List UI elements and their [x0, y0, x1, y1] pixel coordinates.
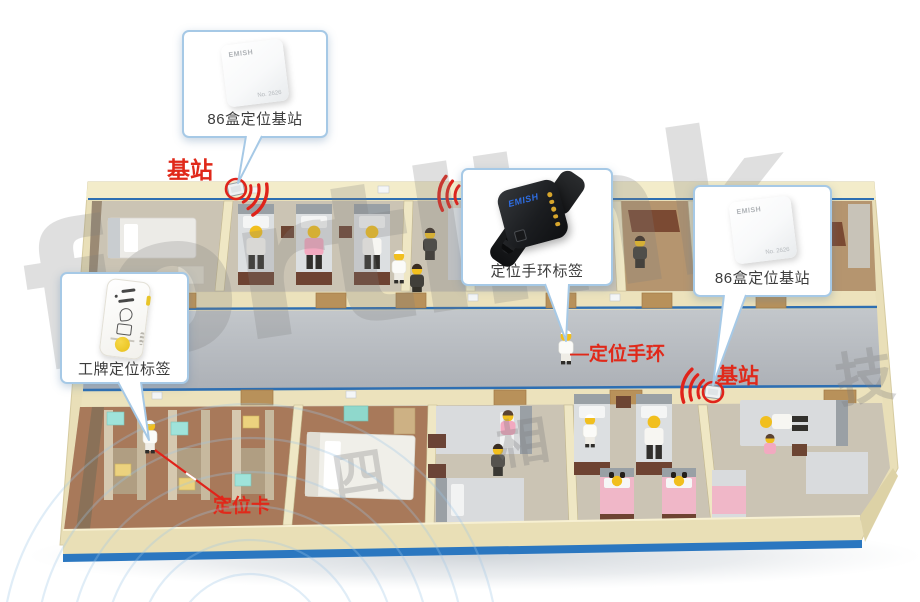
device-number: No. 2626 — [765, 247, 790, 256]
device-logo: EMISH — [228, 49, 253, 59]
callout-badge-tag: 工牌定位标签 — [60, 272, 189, 384]
illustration-canvas: fortlink 四 相 技 基站 基站 —定位手环 定位卡 EMISH No.… — [0, 0, 920, 602]
device-number: No. 2626 — [257, 90, 282, 99]
label-wristband-pointer: —定位手环 — [570, 339, 665, 366]
corridor-floor — [83, 309, 881, 391]
callout-label: 工牌定位标签 — [78, 358, 171, 379]
label-base-station-right: 基站 — [717, 360, 759, 390]
callout-wristband-tag: EMISH 定位手环标签 — [461, 168, 613, 286]
86box-device-image: EMISH No. 2626 — [699, 193, 826, 267]
callout-label: 86盒定位基站 — [715, 267, 810, 288]
callout-86box-station-top: EMISH No. 2626 86盒定位基站 — [182, 30, 328, 138]
label-base-station-left: 基站 — [167, 151, 213, 185]
device-logo: EMISH — [507, 191, 540, 209]
device-logo: EMISH — [736, 206, 761, 216]
label-locator-card: 定位卡 — [213, 491, 270, 518]
wristband-device-image: EMISH — [467, 176, 607, 260]
badge-device-image — [66, 280, 183, 358]
callout-86box-station-right: EMISH No. 2626 86盒定位基站 — [693, 185, 832, 297]
callout-label: 86盒定位基站 — [207, 108, 302, 129]
86box-device-image: EMISH No. 2626 — [188, 38, 322, 108]
